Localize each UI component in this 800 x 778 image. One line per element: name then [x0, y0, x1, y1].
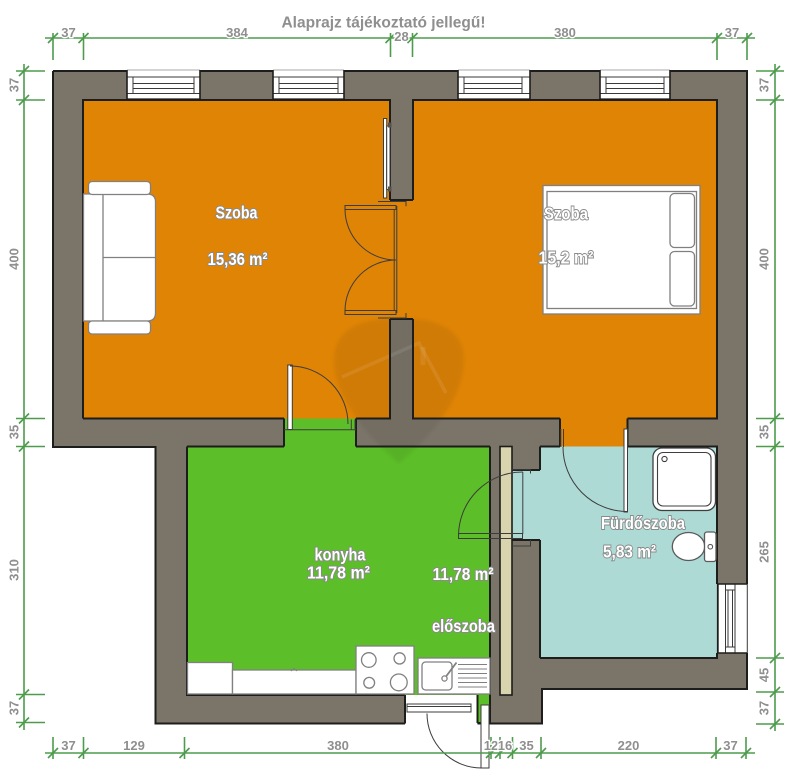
svg-text:384: 384 [226, 25, 248, 40]
svg-text:37: 37 [725, 25, 739, 40]
svg-text:35: 35 [519, 738, 533, 753]
svg-text:előszoba: előszoba [432, 616, 495, 636]
svg-text:5,83 m²: 5,83 m² [603, 542, 656, 562]
svg-text:11,78 m²: 11,78 m² [307, 563, 370, 583]
svg-text:37: 37 [723, 738, 737, 753]
svg-text:15,36 m²: 15,36 m² [208, 249, 268, 269]
svg-text:37: 37 [757, 701, 772, 715]
svg-text:Fürdőszoba: Fürdőszoba [601, 513, 685, 533]
svg-text:310: 310 [7, 559, 22, 581]
svg-text:45: 45 [757, 668, 772, 682]
svg-text:16: 16 [498, 738, 512, 753]
svg-text:380: 380 [327, 738, 349, 753]
svg-text:15,2 m²: 15,2 m² [539, 248, 594, 268]
svg-text:35: 35 [757, 425, 772, 439]
svg-text:Szoba: Szoba [544, 204, 588, 224]
svg-text:12: 12 [484, 738, 498, 753]
svg-text:Szoba: Szoba [216, 203, 258, 223]
svg-text:220: 220 [618, 738, 640, 753]
svg-text:11,78 m²: 11,78 m² [433, 564, 494, 584]
svg-text:konyha: konyha [315, 545, 366, 565]
svg-text:37: 37 [61, 25, 75, 40]
svg-text:37: 37 [7, 78, 22, 92]
svg-text:129: 129 [123, 738, 145, 753]
svg-text:400: 400 [7, 248, 22, 270]
svg-text:37: 37 [61, 738, 75, 753]
svg-text:Alaprajz tájékoztató jellegű!: Alaprajz tájékoztató jellegű! [282, 15, 486, 32]
svg-text:265: 265 [757, 541, 772, 563]
svg-text:35: 35 [7, 425, 22, 439]
svg-text:37: 37 [757, 78, 772, 92]
svg-text:400: 400 [757, 248, 772, 270]
svg-text:37: 37 [7, 701, 22, 715]
svg-text:380: 380 [554, 25, 576, 40]
